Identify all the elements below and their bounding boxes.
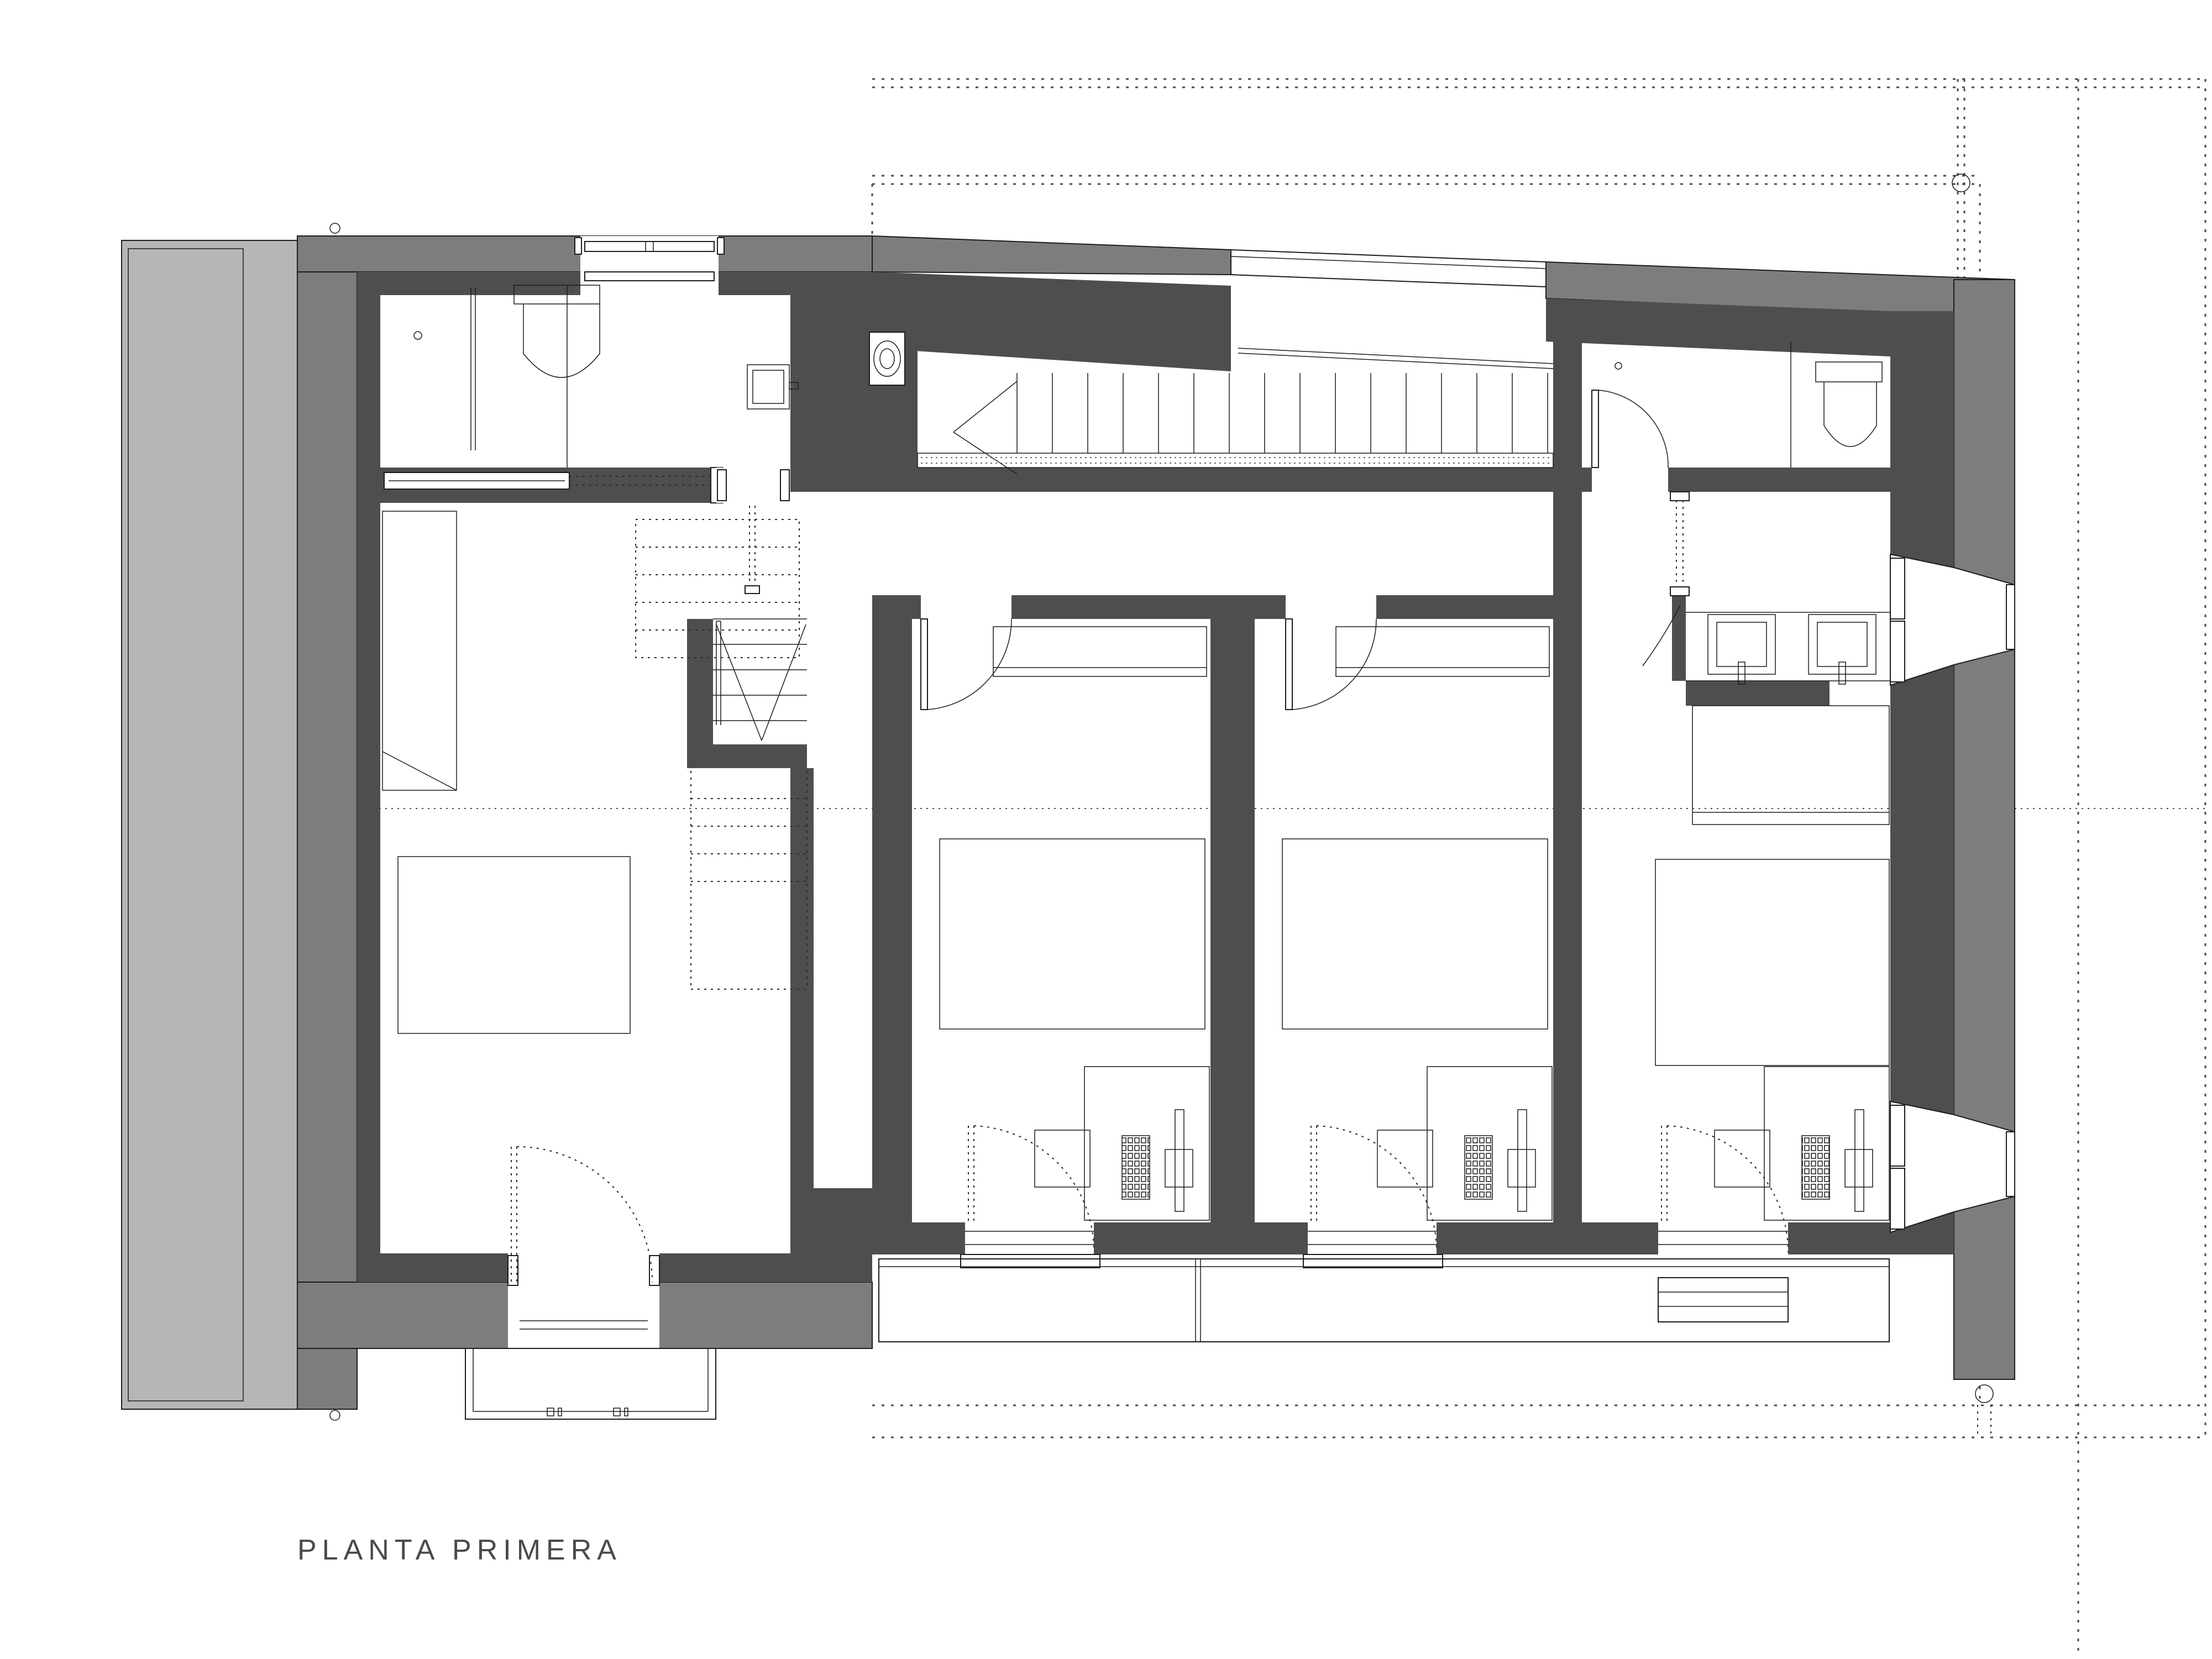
terrace-slab <box>122 240 297 1409</box>
door-sill <box>1303 1254 1443 1268</box>
keyboard <box>1802 1136 1830 1199</box>
door-leaf <box>921 619 927 710</box>
chimney-flue-marker <box>869 332 905 385</box>
door-leaf <box>1286 619 1292 710</box>
exterior-steps <box>1658 1278 1788 1322</box>
outer-wall-west <box>297 236 357 1409</box>
window-north-left <box>575 236 724 295</box>
door-sill <box>961 1254 1100 1268</box>
door-leaf <box>1592 390 1598 468</box>
outer-wall-east <box>1954 280 2015 1379</box>
keyboard <box>1122 1136 1150 1199</box>
balcony-south-west <box>465 1348 716 1419</box>
balcony-railing <box>465 1348 716 1419</box>
terrace-left <box>122 240 297 1409</box>
floor-plan-canvas: PLANTA PRIMERA <box>0 0 2212 1659</box>
keyboard <box>1465 1136 1492 1199</box>
drawing-title: PLANTA PRIMERA <box>297 1534 622 1566</box>
floor-plan-sheet: PLANTA PRIMERA <box>0 0 2212 1659</box>
